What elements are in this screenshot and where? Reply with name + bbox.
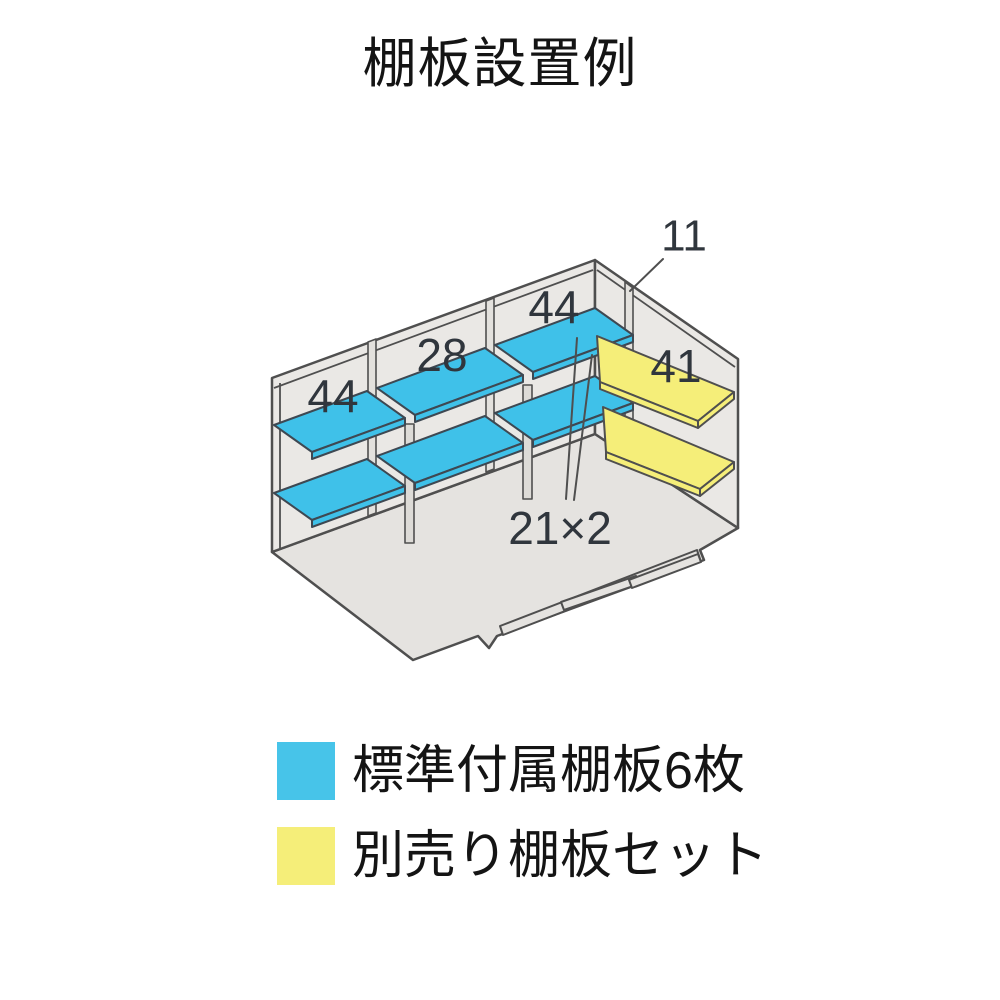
- optional-shelf-label: 別売り棚板セット: [352, 827, 768, 885]
- middle-shelf-width-label: 28: [416, 329, 467, 381]
- right-shelf-width-label: 44: [528, 281, 579, 333]
- panel-leader-line: [630, 259, 663, 291]
- legend-item-standard: 標準付属棚板6枚: [277, 742, 768, 800]
- standard-shelf-label: 標準付属棚板6枚: [352, 742, 745, 800]
- legend: 標準付属棚板6枚 別売り棚板セット: [277, 742, 768, 912]
- legend-item-optional: 別売り棚板セット: [277, 827, 768, 885]
- left-shelf-width-label: 44: [307, 370, 358, 422]
- optional-shelf-swatch: [277, 827, 335, 885]
- standard-shelf-swatch: [277, 742, 335, 800]
- side-panel-count-label: 11: [661, 212, 707, 261]
- support-count-label: 21×2: [508, 502, 612, 554]
- page: 棚板設置例: [0, 0, 1000, 1000]
- optional-shelf-width-label: 41: [650, 340, 701, 392]
